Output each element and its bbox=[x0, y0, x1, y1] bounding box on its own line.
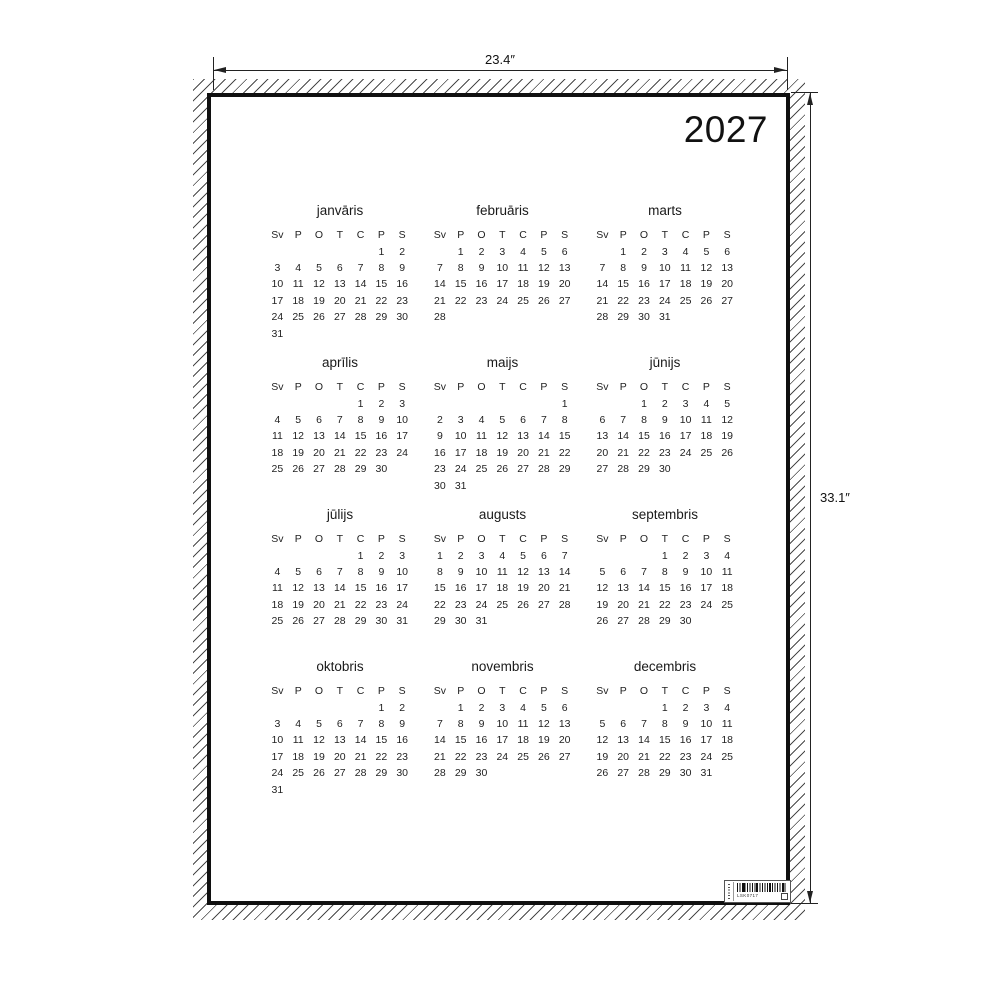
empty-cell bbox=[634, 547, 655, 563]
day-cell: 17 bbox=[450, 445, 471, 461]
day-cell: 29 bbox=[371, 309, 392, 325]
day-cell: 1 bbox=[430, 547, 451, 563]
empty-cell bbox=[371, 325, 392, 341]
day-cell: 19 bbox=[288, 445, 309, 461]
weekday-header: T bbox=[654, 683, 675, 699]
day-cell: 20 bbox=[309, 597, 330, 613]
weekday-header: S bbox=[392, 531, 413, 547]
day-cell: 30 bbox=[675, 613, 696, 629]
weekday-header: P bbox=[371, 531, 392, 547]
month-block: februārisSvPOTCPS12345678910111213141516… bbox=[430, 203, 576, 355]
empty-cell bbox=[267, 699, 288, 715]
calendar-poster: 2027 janvārisSvPOTCPS1234567891011121314… bbox=[207, 93, 790, 905]
day-cell: 23 bbox=[371, 597, 392, 613]
day-cell: 13 bbox=[533, 564, 554, 580]
day-cell: 1 bbox=[634, 395, 655, 411]
day-cell: 17 bbox=[267, 293, 288, 309]
day-cell: 25 bbox=[267, 461, 288, 477]
empty-cell bbox=[492, 395, 513, 411]
day-cell: 8 bbox=[634, 412, 655, 428]
weekday-header: P bbox=[613, 227, 634, 243]
weekday-header: C bbox=[513, 531, 534, 547]
day-cell: 19 bbox=[533, 276, 554, 292]
day-cell: 29 bbox=[654, 765, 675, 781]
day-cell: 7 bbox=[533, 412, 554, 428]
day-cell: 8 bbox=[350, 564, 371, 580]
day-cell: 25 bbox=[513, 749, 534, 765]
day-cell: 10 bbox=[392, 564, 413, 580]
day-cell: 4 bbox=[513, 699, 534, 715]
day-cell: 18 bbox=[717, 732, 738, 748]
day-cell: 7 bbox=[350, 716, 371, 732]
empty-cell bbox=[696, 309, 717, 325]
month-block: janvārisSvPOTCPS123456789101112131415161… bbox=[267, 203, 413, 355]
day-cell: 31 bbox=[267, 781, 288, 797]
day-cell: 26 bbox=[533, 293, 554, 309]
empty-cell bbox=[309, 547, 330, 563]
month-days-grid: SvPOTCPS12345678910111213141516171819202… bbox=[430, 379, 576, 494]
weekday-header: O bbox=[471, 531, 492, 547]
month-title: aprīlis bbox=[267, 355, 413, 372]
day-cell: 12 bbox=[492, 428, 513, 444]
day-cell: 8 bbox=[371, 260, 392, 276]
day-cell: 24 bbox=[675, 445, 696, 461]
day-cell: 14 bbox=[350, 732, 371, 748]
empty-cell bbox=[267, 395, 288, 411]
day-cell: 25 bbox=[513, 293, 534, 309]
empty-cell bbox=[350, 243, 371, 259]
day-cell: 17 bbox=[675, 428, 696, 444]
day-cell: 30 bbox=[471, 765, 492, 781]
weekday-header: P bbox=[533, 683, 554, 699]
weekday-header: T bbox=[492, 227, 513, 243]
day-cell: 22 bbox=[554, 445, 575, 461]
day-cell: 29 bbox=[350, 461, 371, 477]
day-cell: 13 bbox=[717, 260, 738, 276]
day-cell: 30 bbox=[675, 765, 696, 781]
day-cell: 22 bbox=[450, 293, 471, 309]
day-cell: 18 bbox=[288, 749, 309, 765]
empty-cell bbox=[696, 461, 717, 477]
day-cell: 17 bbox=[392, 428, 413, 444]
day-cell: 12 bbox=[309, 732, 330, 748]
day-cell: 1 bbox=[613, 243, 634, 259]
day-cell: 11 bbox=[513, 260, 534, 276]
day-cell: 27 bbox=[717, 293, 738, 309]
weekday-header: P bbox=[533, 227, 554, 243]
day-cell: 5 bbox=[288, 412, 309, 428]
day-cell: 28 bbox=[430, 765, 451, 781]
day-cell: 9 bbox=[392, 260, 413, 276]
empty-cell bbox=[288, 243, 309, 259]
day-cell: 11 bbox=[267, 428, 288, 444]
day-cell: 10 bbox=[696, 564, 717, 580]
day-cell: 16 bbox=[371, 580, 392, 596]
day-cell: 13 bbox=[554, 260, 575, 276]
weekday-header: T bbox=[329, 683, 350, 699]
empty-cell bbox=[430, 699, 451, 715]
day-cell: 7 bbox=[613, 412, 634, 428]
mockup-canvas: 23.4″ 33.1″ 2027 janvārisSvPOTCPS1234567… bbox=[0, 0, 1000, 1000]
day-cell: 3 bbox=[267, 716, 288, 732]
month-title: marts bbox=[592, 203, 738, 220]
day-cell: 7 bbox=[634, 716, 655, 732]
day-cell: 2 bbox=[675, 699, 696, 715]
weekday-header: C bbox=[350, 227, 371, 243]
day-cell: 11 bbox=[288, 732, 309, 748]
weekday-header: S bbox=[717, 227, 738, 243]
day-cell: 17 bbox=[492, 276, 513, 292]
day-cell: 4 bbox=[717, 547, 738, 563]
day-cell: 4 bbox=[492, 547, 513, 563]
month-block: maijsSvPOTCPS123456789101112131415161718… bbox=[430, 355, 576, 507]
empty-cell bbox=[717, 765, 738, 781]
arrow-left-icon bbox=[214, 67, 226, 73]
empty-cell bbox=[675, 461, 696, 477]
month-days-grid: SvPOTCPS12345678910111213141516171819202… bbox=[592, 531, 738, 629]
day-cell: 4 bbox=[267, 564, 288, 580]
weekday-header: P bbox=[613, 683, 634, 699]
day-cell: 28 bbox=[329, 613, 350, 629]
day-cell: 29 bbox=[654, 613, 675, 629]
day-cell: 29 bbox=[613, 309, 634, 325]
empty-cell bbox=[329, 395, 350, 411]
empty-cell bbox=[267, 243, 288, 259]
empty-cell bbox=[309, 699, 330, 715]
empty-cell bbox=[329, 699, 350, 715]
weekday-header: S bbox=[554, 227, 575, 243]
day-cell: 23 bbox=[471, 293, 492, 309]
empty-cell bbox=[288, 781, 309, 797]
day-cell: 5 bbox=[696, 243, 717, 259]
day-cell: 5 bbox=[717, 395, 738, 411]
day-cell: 10 bbox=[696, 716, 717, 732]
empty-cell bbox=[592, 243, 613, 259]
empty-cell bbox=[309, 325, 330, 341]
day-cell: 31 bbox=[696, 765, 717, 781]
day-cell: 14 bbox=[592, 276, 613, 292]
day-cell: 6 bbox=[613, 564, 634, 580]
day-cell: 6 bbox=[592, 412, 613, 428]
day-cell: 9 bbox=[371, 564, 392, 580]
day-cell: 8 bbox=[350, 412, 371, 428]
weekday-header: C bbox=[675, 227, 696, 243]
day-cell: 14 bbox=[634, 732, 655, 748]
barcode-icon bbox=[737, 883, 786, 892]
day-cell: 15 bbox=[371, 732, 392, 748]
day-cell: 18 bbox=[267, 597, 288, 613]
weekday-header: S bbox=[554, 379, 575, 395]
width-dimension-extension-right bbox=[787, 57, 788, 90]
day-cell: 7 bbox=[329, 564, 350, 580]
empty-cell bbox=[513, 765, 534, 781]
day-cell: 22 bbox=[654, 597, 675, 613]
day-cell: 23 bbox=[471, 749, 492, 765]
day-cell: 6 bbox=[513, 412, 534, 428]
day-cell: 22 bbox=[350, 597, 371, 613]
empty-cell bbox=[288, 699, 309, 715]
empty-cell bbox=[350, 781, 371, 797]
day-cell: 3 bbox=[492, 243, 513, 259]
day-cell: 11 bbox=[267, 580, 288, 596]
day-cell: 27 bbox=[613, 765, 634, 781]
weekday-header: Sv bbox=[430, 379, 451, 395]
day-cell: 13 bbox=[613, 732, 634, 748]
height-dimension-line bbox=[810, 93, 811, 904]
day-cell: 19 bbox=[309, 749, 330, 765]
day-cell: 18 bbox=[492, 580, 513, 596]
day-cell: 10 bbox=[450, 428, 471, 444]
day-cell: 20 bbox=[613, 597, 634, 613]
height-dimension-label: 33.1″ bbox=[820, 490, 850, 505]
month-block: augustsSvPOTCPS1234567891011121314151617… bbox=[430, 507, 576, 659]
month-block: novembrisSvPOTCPS12345678910111213141516… bbox=[430, 659, 576, 811]
day-cell: 26 bbox=[309, 309, 330, 325]
day-cell: 3 bbox=[654, 243, 675, 259]
day-cell: 19 bbox=[492, 445, 513, 461]
empty-cell bbox=[492, 309, 513, 325]
weekday-header: P bbox=[288, 683, 309, 699]
day-cell: 6 bbox=[329, 716, 350, 732]
day-cell: 3 bbox=[392, 395, 413, 411]
weekday-header: T bbox=[654, 379, 675, 395]
day-cell: 12 bbox=[696, 260, 717, 276]
empty-cell bbox=[696, 613, 717, 629]
day-cell: 27 bbox=[329, 765, 350, 781]
day-cell: 25 bbox=[675, 293, 696, 309]
weekday-header: Sv bbox=[592, 227, 613, 243]
year-title: 2027 bbox=[684, 110, 768, 150]
month-days-grid: SvPOTCPS12345678910111213141516171819202… bbox=[267, 683, 413, 798]
day-cell: 2 bbox=[471, 243, 492, 259]
day-cell: 23 bbox=[430, 461, 451, 477]
weekday-header: T bbox=[492, 683, 513, 699]
day-cell: 7 bbox=[329, 412, 350, 428]
day-cell: 30 bbox=[634, 309, 655, 325]
day-cell: 17 bbox=[696, 732, 717, 748]
day-cell: 29 bbox=[634, 461, 655, 477]
empty-cell bbox=[492, 477, 513, 493]
month-title: jūlijs bbox=[267, 507, 413, 524]
width-dimension-line bbox=[213, 70, 787, 71]
day-cell: 16 bbox=[392, 732, 413, 748]
day-cell: 24 bbox=[654, 293, 675, 309]
day-cell: 2 bbox=[471, 699, 492, 715]
day-cell: 16 bbox=[471, 276, 492, 292]
empty-cell bbox=[554, 477, 575, 493]
empty-cell bbox=[554, 309, 575, 325]
day-cell: 12 bbox=[592, 732, 613, 748]
empty-cell bbox=[592, 699, 613, 715]
month-title: jūnijs bbox=[592, 355, 738, 372]
day-cell: 21 bbox=[554, 580, 575, 596]
day-cell: 3 bbox=[267, 260, 288, 276]
day-cell: 7 bbox=[350, 260, 371, 276]
day-cell: 1 bbox=[654, 547, 675, 563]
empty-cell bbox=[329, 243, 350, 259]
day-cell: 25 bbox=[267, 613, 288, 629]
day-cell: 12 bbox=[309, 276, 330, 292]
weekday-header: P bbox=[288, 379, 309, 395]
day-cell: 5 bbox=[533, 243, 554, 259]
day-cell: 10 bbox=[492, 716, 513, 732]
day-cell: 23 bbox=[392, 293, 413, 309]
empty-cell bbox=[717, 461, 738, 477]
empty-cell bbox=[492, 613, 513, 629]
day-cell: 17 bbox=[654, 276, 675, 292]
day-cell: 19 bbox=[696, 276, 717, 292]
day-cell: 1 bbox=[371, 243, 392, 259]
empty-cell bbox=[288, 395, 309, 411]
day-cell: 14 bbox=[634, 580, 655, 596]
day-cell: 8 bbox=[430, 564, 451, 580]
day-cell: 18 bbox=[513, 276, 534, 292]
day-cell: 14 bbox=[613, 428, 634, 444]
day-cell: 26 bbox=[513, 597, 534, 613]
day-cell: 30 bbox=[371, 461, 392, 477]
day-cell: 14 bbox=[554, 564, 575, 580]
day-cell: 24 bbox=[492, 293, 513, 309]
weekday-header: T bbox=[492, 531, 513, 547]
day-cell: 16 bbox=[675, 580, 696, 596]
day-cell: 4 bbox=[675, 243, 696, 259]
empty-cell bbox=[309, 781, 330, 797]
day-cell: 13 bbox=[592, 428, 613, 444]
weekday-header: S bbox=[554, 531, 575, 547]
month-days-grid: SvPOTCPS12345678910111213141516171819202… bbox=[430, 683, 576, 781]
month-block: septembrisSvPOTCPS1234567891011121314151… bbox=[592, 507, 738, 659]
day-cell: 13 bbox=[329, 732, 350, 748]
day-cell: 5 bbox=[309, 260, 330, 276]
day-cell: 28 bbox=[533, 461, 554, 477]
empty-cell bbox=[309, 243, 330, 259]
weekday-header: O bbox=[309, 379, 330, 395]
day-cell: 27 bbox=[513, 461, 534, 477]
day-cell: 4 bbox=[471, 412, 492, 428]
day-cell: 25 bbox=[717, 597, 738, 613]
empty-cell bbox=[329, 547, 350, 563]
day-cell: 27 bbox=[554, 293, 575, 309]
day-cell: 13 bbox=[309, 428, 330, 444]
day-cell: 9 bbox=[675, 564, 696, 580]
weekday-header: O bbox=[634, 379, 655, 395]
month-block: oktobrisSvPOTCPS123456789101112131415161… bbox=[267, 659, 413, 811]
day-cell: 22 bbox=[634, 445, 655, 461]
day-cell: 18 bbox=[267, 445, 288, 461]
day-cell: 22 bbox=[613, 293, 634, 309]
day-cell: 8 bbox=[450, 716, 471, 732]
month-title: janvāris bbox=[267, 203, 413, 220]
day-cell: 23 bbox=[675, 749, 696, 765]
day-cell: 1 bbox=[450, 243, 471, 259]
day-cell: 3 bbox=[696, 547, 717, 563]
weekday-header: P bbox=[696, 531, 717, 547]
weekday-header: Sv bbox=[267, 379, 288, 395]
day-cell: 9 bbox=[371, 412, 392, 428]
day-cell: 30 bbox=[430, 477, 451, 493]
day-cell: 7 bbox=[634, 564, 655, 580]
empty-cell bbox=[471, 477, 492, 493]
day-cell: 16 bbox=[634, 276, 655, 292]
day-cell: 16 bbox=[471, 732, 492, 748]
day-cell: 11 bbox=[288, 276, 309, 292]
day-cell: 7 bbox=[592, 260, 613, 276]
day-cell: 2 bbox=[392, 699, 413, 715]
day-cell: 9 bbox=[450, 564, 471, 580]
day-cell: 9 bbox=[430, 428, 451, 444]
day-cell: 30 bbox=[371, 613, 392, 629]
day-cell: 4 bbox=[696, 395, 717, 411]
weekday-header: S bbox=[554, 683, 575, 699]
day-cell: 18 bbox=[513, 732, 534, 748]
day-cell: 15 bbox=[450, 276, 471, 292]
day-cell: 17 bbox=[267, 749, 288, 765]
day-cell: 22 bbox=[371, 293, 392, 309]
weekday-header: O bbox=[634, 227, 655, 243]
month-title: septembris bbox=[592, 507, 738, 524]
day-cell: 26 bbox=[592, 765, 613, 781]
day-cell: 29 bbox=[554, 461, 575, 477]
day-cell: 25 bbox=[288, 765, 309, 781]
empty-cell bbox=[533, 477, 554, 493]
month-days-grid: SvPOTCPS12345678910111213141516171819202… bbox=[267, 379, 413, 477]
day-cell: 29 bbox=[430, 613, 451, 629]
day-cell: 7 bbox=[430, 260, 451, 276]
day-cell: 8 bbox=[613, 260, 634, 276]
day-cell: 27 bbox=[554, 749, 575, 765]
day-cell: 3 bbox=[696, 699, 717, 715]
months-grid: janvārisSvPOTCPS123456789101112131415161… bbox=[267, 203, 755, 811]
weekday-header: C bbox=[513, 227, 534, 243]
arrow-up-icon bbox=[807, 93, 813, 105]
day-cell: 20 bbox=[613, 749, 634, 765]
day-cell: 2 bbox=[392, 243, 413, 259]
weekday-header: Sv bbox=[267, 683, 288, 699]
weekday-header: P bbox=[288, 531, 309, 547]
weekday-header: O bbox=[471, 227, 492, 243]
weekday-header: P bbox=[288, 227, 309, 243]
weekday-header: P bbox=[450, 531, 471, 547]
empty-cell bbox=[288, 547, 309, 563]
day-cell: 6 bbox=[309, 412, 330, 428]
day-cell: 21 bbox=[430, 293, 451, 309]
weekday-header: S bbox=[717, 531, 738, 547]
day-cell: 22 bbox=[350, 445, 371, 461]
day-cell: 23 bbox=[634, 293, 655, 309]
day-cell: 6 bbox=[309, 564, 330, 580]
empty-cell bbox=[613, 699, 634, 715]
month-days-grid: SvPOTCPS12345678910111213141516171819202… bbox=[267, 531, 413, 629]
width-dimension-label: 23.4″ bbox=[430, 52, 570, 67]
day-cell: 10 bbox=[267, 276, 288, 292]
day-cell: 2 bbox=[371, 547, 392, 563]
day-cell: 9 bbox=[654, 412, 675, 428]
day-cell: 10 bbox=[267, 732, 288, 748]
day-cell: 30 bbox=[392, 309, 413, 325]
weekday-header: P bbox=[613, 379, 634, 395]
day-cell: 29 bbox=[371, 765, 392, 781]
month-days-grid: SvPOTCPS12345678910111213141516171819202… bbox=[430, 227, 576, 325]
day-cell: 14 bbox=[430, 732, 451, 748]
barcode-main: LSK0717 bbox=[734, 881, 790, 902]
weekday-header: P bbox=[371, 683, 392, 699]
weekday-header: P bbox=[696, 227, 717, 243]
empty-cell bbox=[329, 325, 350, 341]
day-cell: 22 bbox=[371, 749, 392, 765]
empty-cell bbox=[392, 781, 413, 797]
day-cell: 24 bbox=[696, 749, 717, 765]
day-cell: 8 bbox=[371, 716, 392, 732]
